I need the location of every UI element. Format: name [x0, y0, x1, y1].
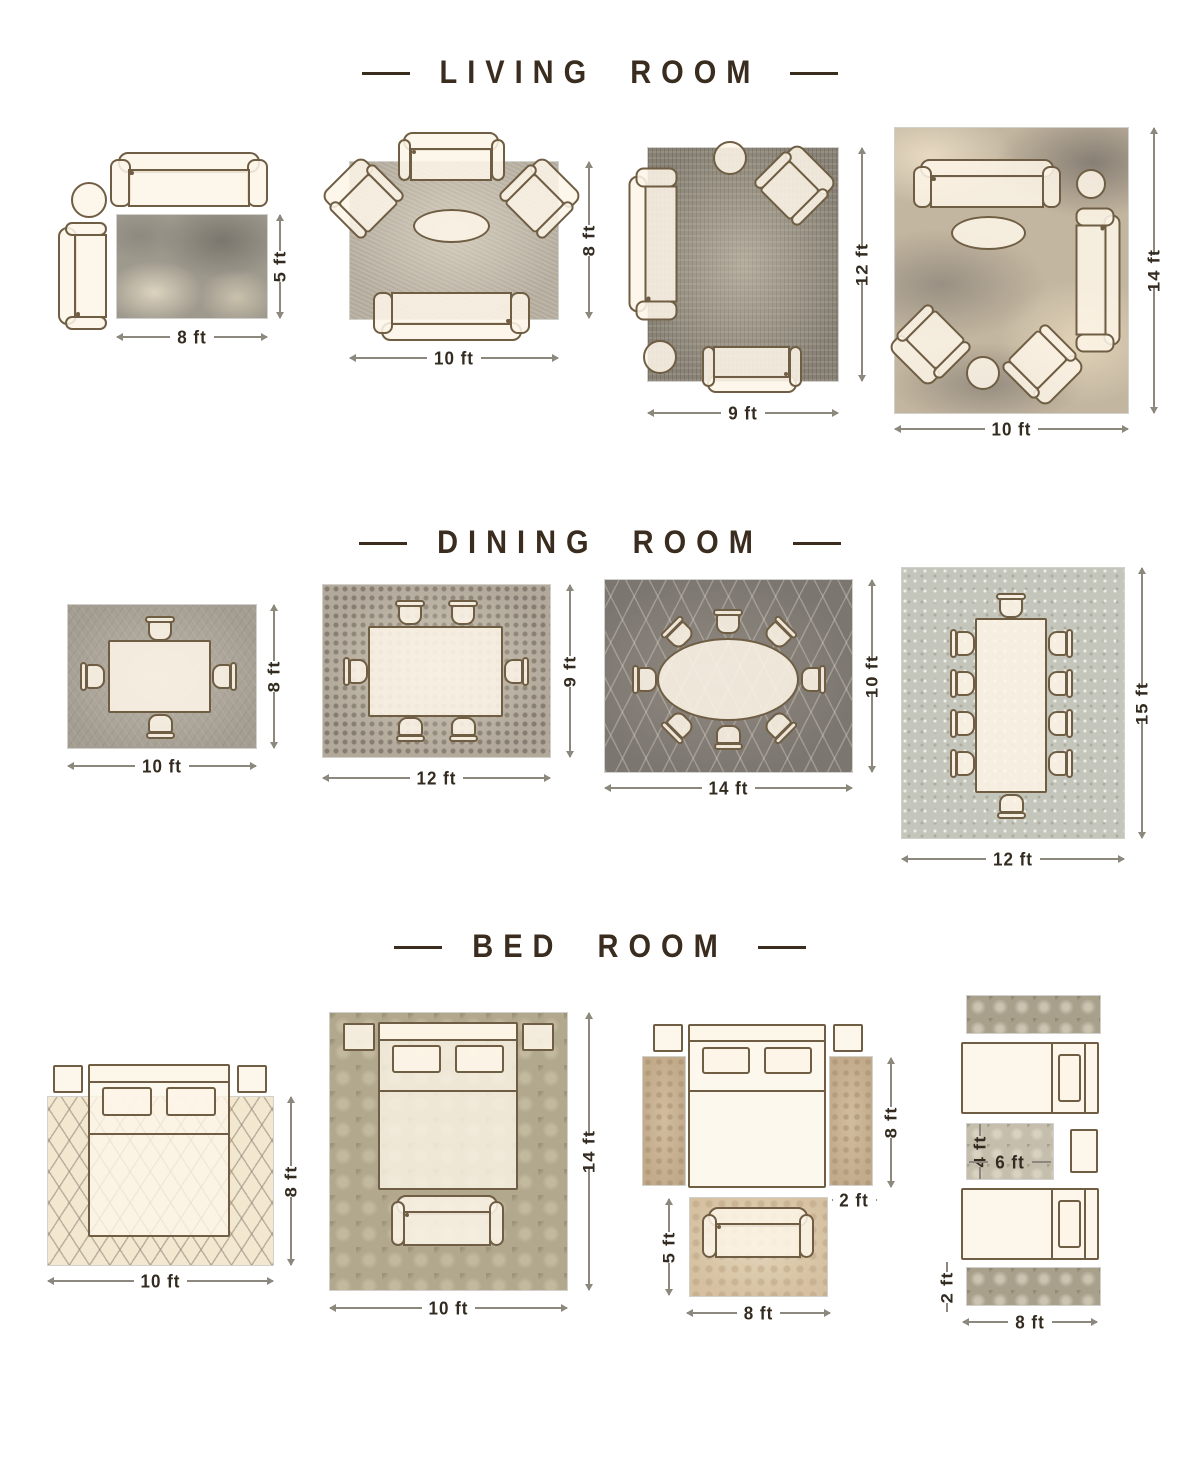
loveseat — [702, 345, 802, 393]
bedside-runner-left — [643, 1057, 685, 1185]
sofa-cushion — [405, 1213, 409, 1217]
header-dash — [793, 542, 841, 545]
dimension-label: 9 ft — [555, 655, 586, 687]
sofa-arm — [247, 159, 268, 207]
sofa-3seat — [628, 168, 678, 321]
nightstand — [237, 1065, 267, 1093]
blanket-fold — [1051, 1190, 1053, 1258]
dining-chair — [80, 663, 105, 690]
dimension-label: 8 ft — [170, 328, 214, 346]
dimension-line — [780, 1312, 830, 1314]
nightstand — [53, 1065, 83, 1093]
chair-seat — [801, 667, 821, 691]
loveseat — [398, 132, 505, 182]
pillow — [702, 1047, 750, 1074]
chair-seat — [999, 598, 1023, 618]
sofa-cushions — [128, 169, 250, 207]
dimension-label: 10 ft — [985, 420, 1039, 438]
twin-runner-bottom — [967, 1268, 1100, 1305]
dimension-line — [1153, 128, 1155, 255]
dimension-label: 8 ft — [574, 224, 605, 256]
dimension-line — [273, 692, 275, 748]
chair-seat — [1048, 671, 1068, 695]
dining-chair — [212, 663, 237, 690]
dimension-10-ft: 10 ft — [330, 1299, 567, 1317]
pillow — [392, 1045, 441, 1073]
chair-seat — [212, 664, 232, 688]
dimension-label: 5 ft — [265, 251, 296, 283]
sofa-cushions — [715, 1223, 801, 1258]
dining-chair — [998, 794, 1025, 819]
dining-chair — [715, 725, 742, 750]
dimension-label: 14 ft — [574, 1130, 605, 1173]
dimension-line — [668, 1263, 670, 1296]
dimension-label: 5 ft — [654, 1231, 685, 1263]
chair-seat — [398, 717, 422, 737]
chair-seat — [148, 621, 172, 641]
sofa-arm — [789, 346, 802, 387]
twin-bed — [961, 1042, 1099, 1114]
sofa-cushion — [76, 314, 80, 318]
dimension-line — [979, 1124, 981, 1136]
sofa-cushion — [930, 177, 934, 181]
dimension-label: 12 ft — [847, 243, 878, 286]
sofa-arm — [635, 301, 678, 321]
dimension-label: 9 ft — [721, 404, 765, 422]
dining-chair — [397, 600, 424, 625]
dimension-line — [969, 1161, 988, 1163]
dimension-10-ft: 10 ft — [48, 1272, 273, 1290]
dining-chair — [147, 616, 174, 641]
oval-dining-table — [657, 638, 799, 721]
dimension-9-ft: 9 ft — [648, 404, 838, 422]
sofa-cushion — [1100, 224, 1104, 228]
dimension-label: 8 ft — [276, 1165, 307, 1197]
sofa-cushion — [412, 150, 416, 154]
pillow — [102, 1087, 152, 1116]
dining-chair — [147, 714, 174, 739]
pillow — [1058, 1200, 1081, 1249]
dimension-line — [330, 1307, 422, 1309]
dimension-line — [350, 357, 427, 359]
dimension-line — [1153, 286, 1155, 413]
chair-seat — [716, 725, 740, 745]
sofa-cushions — [714, 346, 791, 378]
sofa-arm — [65, 316, 108, 330]
headboard — [1084, 1044, 1097, 1112]
dimension-label: 10 ft — [134, 1272, 188, 1290]
dimension-line — [871, 580, 873, 661]
living-rug-8x5 — [117, 215, 267, 318]
twin-runner-top — [967, 996, 1100, 1033]
dimension-label: 12 ft — [410, 769, 464, 787]
dimension-8-ft: 8 ft — [882, 1058, 900, 1187]
dimension-label: 8 ft — [259, 661, 290, 693]
headboard — [690, 1026, 824, 1042]
chair-seat — [451, 717, 475, 737]
dimension-line — [279, 282, 281, 318]
blanket-fold — [1051, 1044, 1053, 1112]
dining-chair — [1048, 670, 1073, 697]
blanket-fold — [690, 1090, 824, 1092]
dining-chair — [450, 600, 477, 625]
chair-seat — [1048, 711, 1068, 735]
dimension-8-ft: 8 ft — [687, 1304, 830, 1322]
dimension-8-ft: 8 ft — [963, 1313, 1097, 1331]
nightstand — [833, 1024, 863, 1052]
sofa-3seat — [1074, 208, 1120, 353]
dimension-label: 10 ft — [422, 1299, 476, 1317]
dimension-label: 15 ft — [1127, 681, 1158, 724]
header-dash — [394, 946, 442, 949]
nightstand — [653, 1024, 683, 1052]
dimension-line — [765, 412, 838, 414]
dimension-label: 14 ft — [1139, 249, 1170, 292]
dimension-line — [569, 585, 571, 656]
chair-seat — [955, 631, 975, 655]
dimension-label: 12 ft — [986, 850, 1040, 868]
dimension-12-ft: 12 ft — [323, 769, 550, 787]
dimension-line — [1141, 719, 1143, 839]
chair-seat — [1048, 631, 1068, 655]
chair-seat — [955, 711, 975, 735]
dimension-10-ft: 10 ft — [350, 349, 558, 367]
rug-size-guide-poster: LIVING ROOM8 ft5 ft10 ft8 ft9 ft12 ft10 … — [0, 0, 1200, 1467]
oval-coffee-table — [951, 216, 1026, 250]
dimension-14-ft: 14 ft — [605, 779, 852, 797]
header-dash — [359, 542, 407, 545]
dimension-line — [273, 605, 275, 661]
sofa-arm — [509, 292, 529, 335]
sofa-cushions — [1075, 224, 1106, 336]
bench — [391, 1195, 504, 1248]
dimension-5-ft: 5 ft — [271, 215, 289, 318]
dimension-line — [687, 1312, 737, 1314]
dimension-line — [214, 336, 267, 338]
dimension-line — [890, 1138, 892, 1187]
dimension-10-ft: 10 ft — [863, 580, 881, 772]
dimension-line — [463, 777, 550, 779]
dimension-label: 8 ft — [876, 1107, 907, 1139]
dimension-10-ft: 10 ft — [895, 420, 1128, 438]
nightstand — [1070, 1129, 1098, 1173]
dining-chair — [801, 666, 826, 693]
dining-table — [368, 626, 503, 717]
pillow — [166, 1087, 216, 1116]
chair-seat — [955, 671, 975, 695]
dimension-line — [963, 1321, 1008, 1323]
round-side-table — [713, 141, 747, 175]
headboard — [90, 1066, 228, 1083]
dining-chair — [632, 666, 657, 693]
dimension-line — [588, 162, 590, 225]
chair-seat — [348, 659, 368, 683]
headboard — [380, 1024, 516, 1041]
dimension-8-ft: 8 ft — [580, 162, 598, 318]
dining-chair — [950, 710, 975, 737]
round-side-table — [71, 182, 107, 218]
dimension-6-ft: 6 ft — [969, 1153, 1051, 1171]
chair-seat — [1048, 751, 1068, 775]
sofa-3seat — [110, 152, 268, 208]
dimension-line — [588, 1013, 590, 1136]
dimension-line — [588, 256, 590, 319]
sofa-cushions — [391, 292, 512, 326]
dimension-12-ft: 12 ft — [853, 148, 871, 381]
dimension-2-ft: 2 ft — [832, 1191, 876, 1209]
sofa-arm — [491, 139, 505, 182]
dimension-label: 10 ft — [427, 349, 481, 367]
pillow — [764, 1047, 812, 1074]
chair-seat — [955, 751, 975, 775]
dimension-line — [871, 692, 873, 773]
dimension-line — [946, 1262, 948, 1272]
dimension-line — [668, 1199, 670, 1232]
section-title-living-room: LIVING ROOM — [440, 55, 761, 92]
dimension-2-ft: 2 ft — [938, 1262, 956, 1312]
headboard — [1084, 1190, 1097, 1258]
dimension-8-ft: 8 ft — [117, 328, 267, 346]
dimension-14-ft: 14 ft — [580, 1013, 598, 1290]
dimension-label: 8 ft — [737, 1304, 781, 1322]
pillow — [455, 1045, 504, 1073]
chair-seat — [398, 605, 422, 625]
section-header-dining-room: DINING ROOM — [0, 527, 1200, 560]
dimension-line — [1141, 568, 1143, 688]
dining-table — [975, 618, 1047, 793]
sofa-2seat — [58, 222, 108, 330]
dimension-line — [895, 428, 985, 430]
dimension-line — [605, 787, 702, 789]
chair-seat — [999, 794, 1023, 814]
round-side-table — [1076, 169, 1106, 199]
header-dash — [758, 946, 806, 949]
dimension-label: 10 ft — [135, 757, 189, 775]
bench — [702, 1207, 814, 1259]
twin-bed — [961, 1188, 1099, 1260]
section-title-dining-room: DINING ROOM — [437, 525, 763, 562]
sofa-cushion — [646, 299, 650, 303]
dimension-line — [481, 357, 558, 359]
dimension-line — [1052, 1321, 1097, 1323]
sofa-cushions — [403, 1211, 490, 1247]
dimension-5-ft: 5 ft — [660, 1199, 678, 1295]
dining-chair — [1048, 630, 1073, 657]
chair-seat — [85, 664, 105, 688]
header-dash — [362, 72, 410, 75]
chair-seat — [504, 659, 524, 683]
blanket-fold — [90, 1133, 228, 1135]
dimension-line — [861, 280, 863, 381]
sofa-cushions — [74, 234, 108, 317]
bed — [378, 1022, 518, 1190]
dimension-line — [648, 412, 721, 414]
sofa-cushions — [410, 148, 492, 182]
dimension-15-ft: 15 ft — [1133, 568, 1151, 838]
chair-seat — [451, 605, 475, 625]
header-dash — [790, 72, 838, 75]
dimension-line — [279, 215, 281, 251]
dimension-line — [1032, 1161, 1051, 1163]
dining-chair — [450, 717, 477, 742]
sofa-arm — [1075, 334, 1114, 353]
section-header-bed-room: BED ROOM — [0, 931, 1200, 964]
dimension-line — [117, 336, 170, 338]
dining-chair — [950, 670, 975, 697]
dimension-8-ft: 8 ft — [282, 1097, 300, 1265]
sofa-cushions — [930, 175, 1044, 209]
nightstand — [522, 1023, 554, 1051]
dimension-line — [588, 1167, 590, 1290]
chair-seat — [637, 667, 657, 691]
bedside-runner-right — [830, 1057, 872, 1185]
sofa-3seat — [373, 291, 530, 341]
sofa-3seat — [913, 159, 1061, 209]
dining-chair — [715, 609, 742, 634]
dimension-line — [1040, 858, 1124, 860]
sofa-arm — [1042, 166, 1061, 209]
dimension-line — [861, 148, 863, 249]
bed — [88, 1064, 230, 1237]
sofa-arm — [373, 292, 393, 335]
dimension-label: 8 ft — [1008, 1313, 1052, 1331]
dimension-label: 6 ft — [988, 1153, 1032, 1171]
dimension-14-ft: 14 ft — [1145, 128, 1163, 413]
dining-chair — [397, 717, 424, 742]
sofa-cushion — [785, 372, 789, 376]
dimension-10-ft: 10 ft — [68, 757, 256, 775]
dimension-label: 10 ft — [857, 654, 888, 697]
dimension-line — [902, 858, 986, 860]
dining-chair — [343, 658, 368, 685]
dining-chair — [1048, 710, 1073, 737]
dimension-line — [569, 687, 571, 758]
dimension-line — [323, 777, 410, 779]
sofa-cushions — [644, 185, 678, 303]
dining-chair — [950, 630, 975, 657]
round-side-table — [966, 356, 1000, 390]
oval-coffee-table — [413, 209, 490, 243]
pillow — [1058, 1054, 1081, 1103]
chair-seat — [148, 714, 172, 734]
dimension-line — [890, 1058, 892, 1107]
dimension-9-ft: 9 ft — [561, 585, 579, 757]
dimension-line — [475, 1307, 567, 1309]
dining-table — [108, 640, 211, 713]
dimension-label: 14 ft — [702, 779, 756, 797]
dimension-8-ft: 8 ft — [265, 605, 283, 748]
dining-chair — [504, 658, 529, 685]
dimension-line — [189, 765, 256, 767]
sofa-arm — [799, 1214, 814, 1258]
dimension-line — [755, 787, 852, 789]
dimension-12-ft: 12 ft — [902, 850, 1124, 868]
dimension-line — [1038, 428, 1128, 430]
dimension-line — [290, 1097, 292, 1166]
dimension-line — [946, 1303, 948, 1313]
dimension-line — [48, 1280, 134, 1282]
dining-chair — [1048, 750, 1073, 777]
nightstand — [343, 1023, 375, 1051]
dimension-label: 2 ft — [832, 1191, 876, 1209]
dining-chair — [998, 593, 1025, 618]
dimension-line — [290, 1197, 292, 1266]
bed — [688, 1024, 826, 1188]
round-side-table — [643, 340, 677, 374]
section-title-bed-room: BED ROOM — [472, 929, 728, 966]
dimension-line — [187, 1280, 273, 1282]
chair-seat — [716, 614, 740, 634]
blanket-fold — [380, 1090, 516, 1092]
sofa-arm — [489, 1201, 504, 1246]
section-header-living-room: LIVING ROOM — [0, 57, 1200, 90]
dimension-line — [68, 765, 135, 767]
dining-chair — [950, 750, 975, 777]
dimension-label: 2 ft — [932, 1271, 963, 1303]
sofa-cushion — [717, 1225, 721, 1229]
